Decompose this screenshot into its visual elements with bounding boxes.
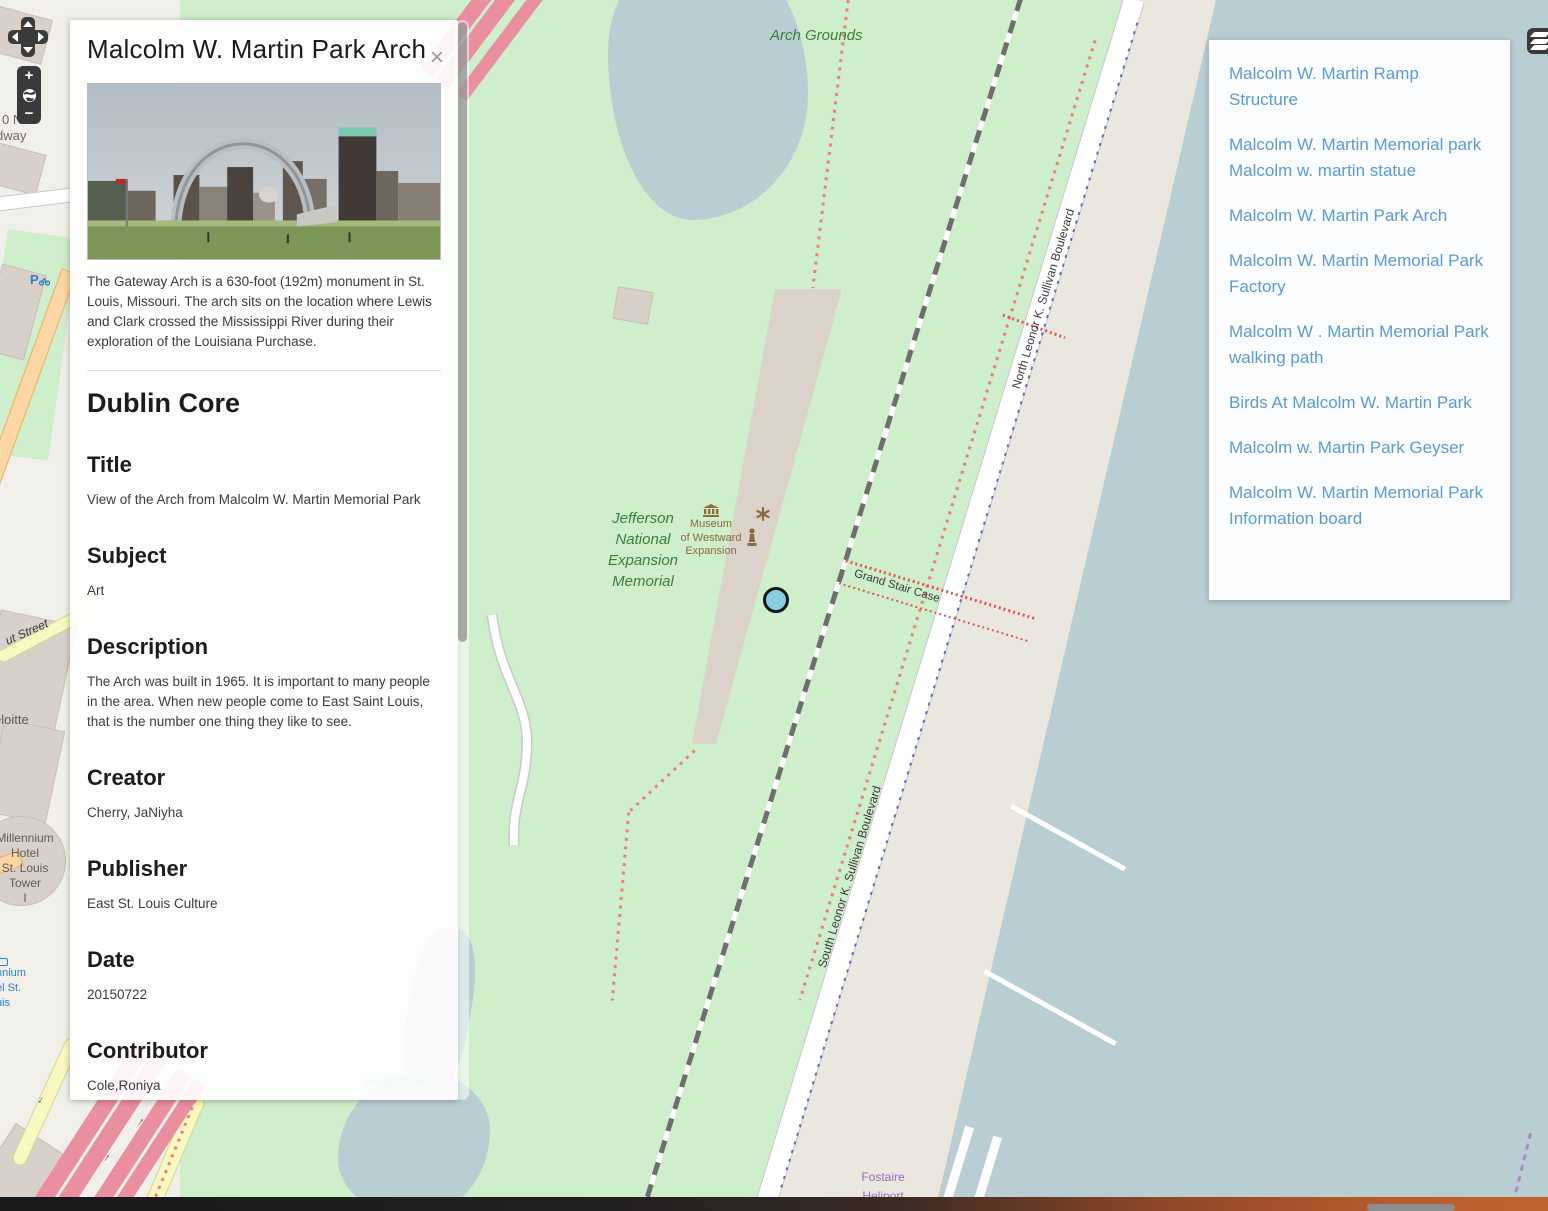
field-value-description: The Arch was built in 1965. It is import… xyxy=(87,672,441,732)
hotel-poi-line: uis xyxy=(0,996,26,1011)
gateway-arch-photo xyxy=(87,83,441,260)
zoom-out-button[interactable]: − xyxy=(25,106,34,122)
layers-button[interactable] xyxy=(1527,28,1548,54)
pan-right-icon[interactable] xyxy=(38,32,44,42)
field-label-creator: Creator xyxy=(87,765,441,791)
heliport-label-line: Fostaire xyxy=(843,1168,923,1187)
item-link[interactable]: Malcolm W . Martin Memorial Park walking… xyxy=(1229,319,1492,371)
map-zoom-control[interactable]: + − xyxy=(17,66,41,124)
plaza-structure xyxy=(612,286,653,325)
hotel-poi-label: nnium el St. uis xyxy=(0,958,26,1011)
hotel-poi-line: el St. xyxy=(0,981,26,996)
related-items-panel: Malcolm W. Martin Ramp Structure Malcolm… xyxy=(1209,40,1510,600)
panel-scrollbar-thumb[interactable] xyxy=(458,22,467,642)
field-value-title: View of the Arch from Malcolm W. Martin … xyxy=(87,490,441,510)
item-link[interactable]: Malcolm W. Martin Memorial Park Factory xyxy=(1229,248,1492,300)
field-label-description: Description xyxy=(87,634,441,660)
map-pan-control[interactable] xyxy=(8,17,48,57)
item-link[interactable]: Malcolm W. Martin Memorial park Malcolm … xyxy=(1229,132,1492,184)
item-link[interactable]: Birds At Malcolm W. Martin Park xyxy=(1229,390,1492,416)
item-link[interactable]: Malcolm w. Martin Park Geyser xyxy=(1229,435,1492,461)
bed-icon xyxy=(0,958,8,966)
parking-p-glyph: P xyxy=(30,272,39,287)
page-bottom-strip xyxy=(0,1197,1548,1211)
field-value-date: 20150722 xyxy=(87,985,441,1005)
field-label-publisher: Publisher xyxy=(87,856,441,882)
museum-label-line: Museum xyxy=(661,518,761,532)
museum-label: Museum of Westward Expansion xyxy=(661,518,761,559)
hotel-label-line: I xyxy=(0,891,80,906)
item-link[interactable]: Malcolm W. Martin Memorial Park Informat… xyxy=(1229,480,1492,532)
item-link[interactable]: Malcolm W. Martin Ramp Structure xyxy=(1229,61,1492,113)
building xyxy=(0,142,47,196)
field-value-creator: Cherry, JaNiyha xyxy=(87,803,441,823)
memorial-label-line: Memorial xyxy=(573,571,713,592)
hotel-label-line: Hotel xyxy=(0,846,80,861)
field-value-publisher: East St. Louis Culture xyxy=(87,894,441,914)
hotel-label-line: Tower xyxy=(0,876,80,891)
field-value-subject: Art xyxy=(87,581,441,601)
deloitte-label: eloitte xyxy=(0,712,29,727)
museum-icon xyxy=(702,504,720,517)
dublin-core-heading: Dublin Core xyxy=(87,388,441,419)
bottom-scroll-pill xyxy=(1367,1204,1455,1211)
field-label-subject: Subject xyxy=(87,543,441,569)
bicycle-parking-icon: P xyxy=(30,272,50,287)
building xyxy=(0,719,65,825)
pan-down-icon[interactable] xyxy=(23,47,33,53)
hotel-label-line: Millennium xyxy=(0,831,80,846)
field-label-contributor: Contributor xyxy=(87,1038,441,1064)
globe-icon[interactable] xyxy=(22,88,37,103)
item-summary: The Gateway Arch is a 630-foot (192m) mo… xyxy=(87,272,443,352)
divider xyxy=(87,370,441,371)
item-link[interactable]: Malcolm W. Martin Park Arch xyxy=(1229,203,1492,229)
zoom-in-button[interactable]: + xyxy=(25,68,34,84)
hotel-poi-line: nnium xyxy=(0,966,26,981)
field-label-date: Date xyxy=(87,947,441,973)
broadway-label-partial: dway xyxy=(0,128,26,143)
entrance-loop-path xyxy=(470,600,560,860)
museum-label-line: Expansion xyxy=(661,545,761,559)
item-location-marker[interactable] xyxy=(763,587,789,613)
field-value-contributor: Cole,Roniya xyxy=(87,1076,441,1096)
hotel-label-line: St. Louis xyxy=(0,861,80,876)
museum-label-line: of Westward xyxy=(661,532,761,546)
pan-up-icon[interactable] xyxy=(23,21,33,27)
arch-grounds-label: Arch Grounds xyxy=(770,27,863,44)
item-detail-panel: × Malcolm W. Martin Park Arch xyxy=(70,20,458,1100)
field-label-title: Title xyxy=(87,452,441,478)
layers-icon xyxy=(1532,32,1548,50)
map-application: ↑ ↑ ↑ Grand Stair Case xyxy=(0,0,1548,1211)
close-icon[interactable]: × xyxy=(430,46,444,70)
millennium-hotel-label: Millennium Hotel St. Louis Tower I xyxy=(0,831,80,906)
pan-left-icon[interactable] xyxy=(12,32,18,42)
item-title: Malcolm W. Martin Park Arch xyxy=(87,34,441,65)
